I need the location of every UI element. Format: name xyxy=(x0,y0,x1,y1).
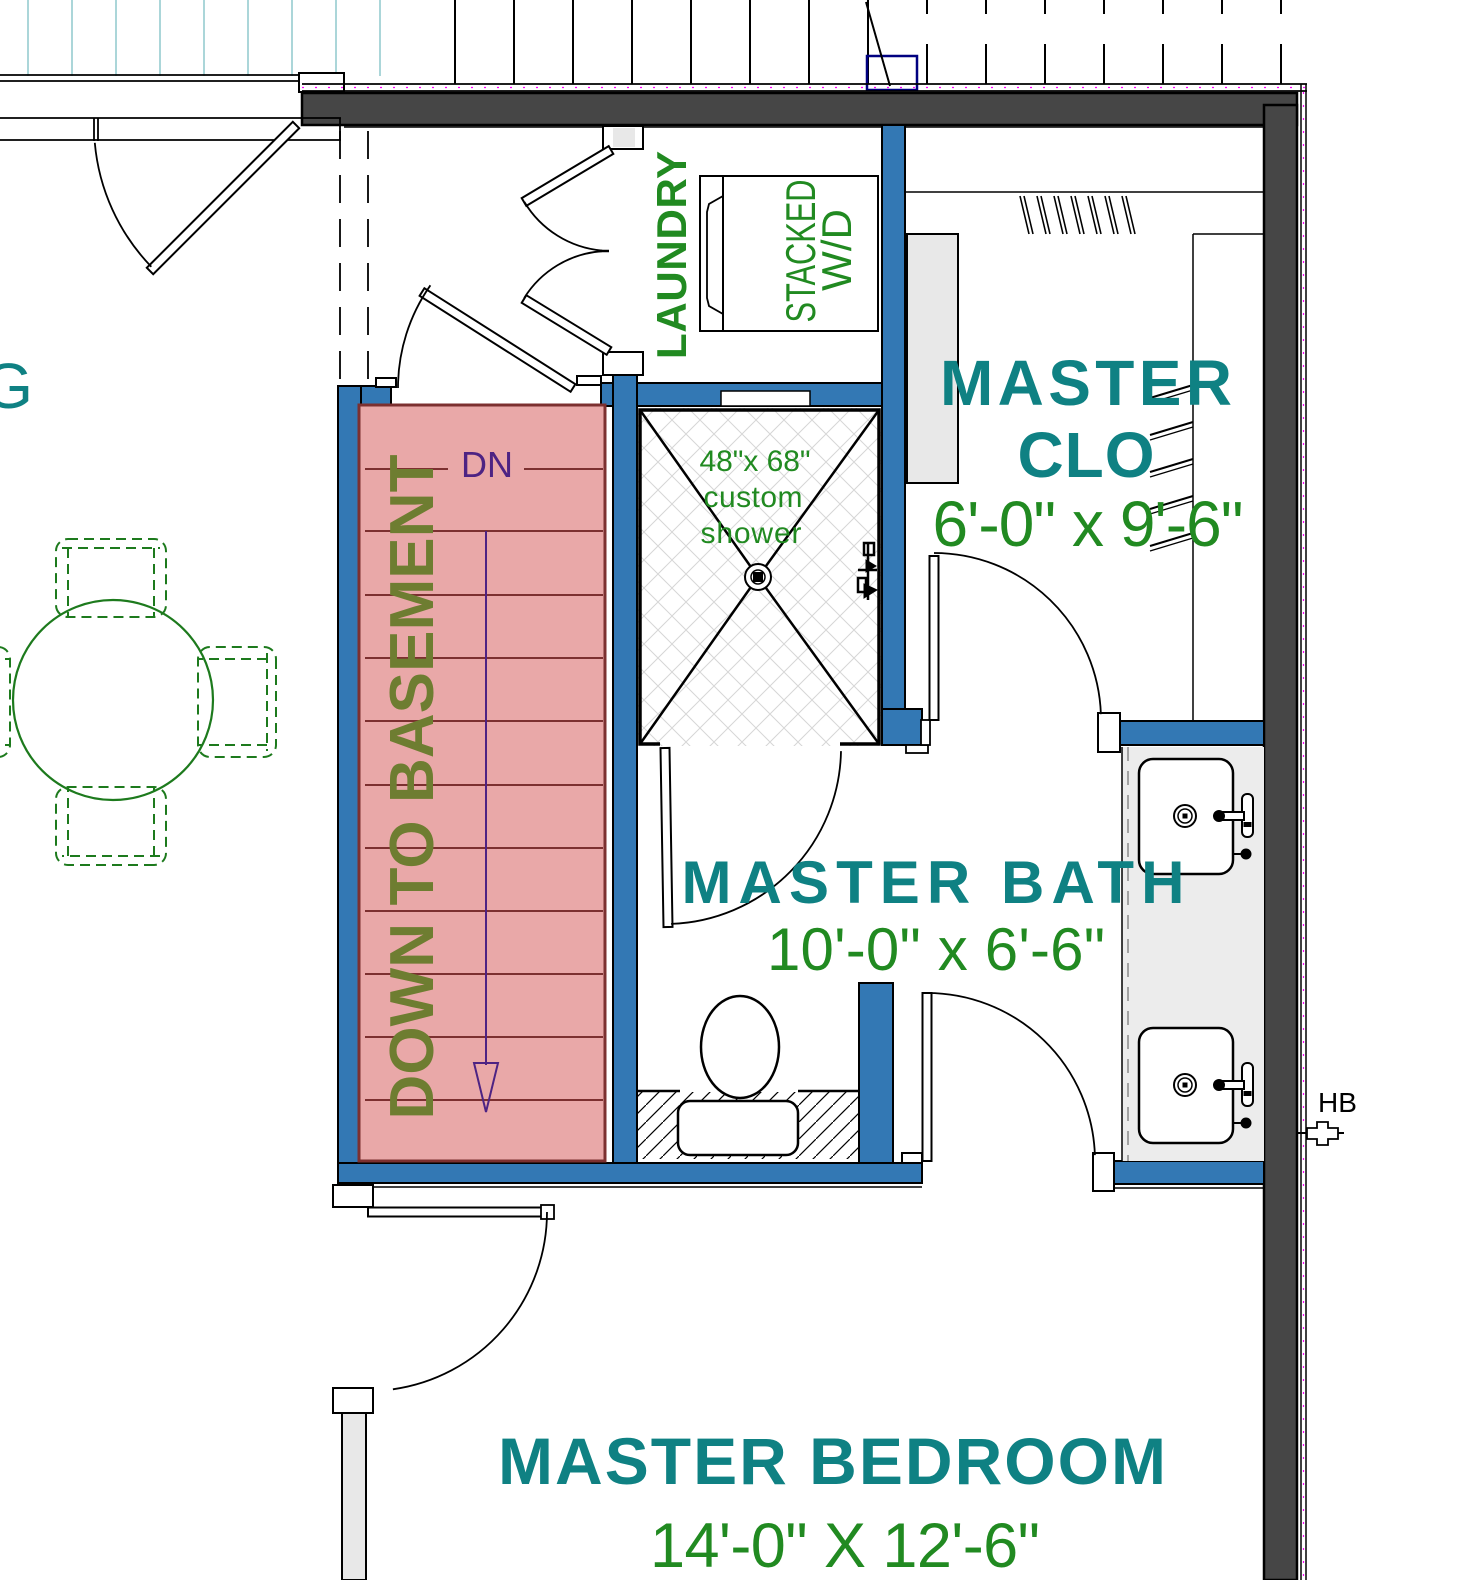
svg-text:LAUNDRY: LAUNDRY xyxy=(648,151,695,359)
svg-text:48"x 68": 48"x 68" xyxy=(700,445,811,478)
svg-text:shower: shower xyxy=(701,517,802,550)
svg-text:6'-0" x 9'-6": 6'-0" x 9'-6" xyxy=(933,488,1244,560)
svg-text:MASTER BATH: MASTER BATH xyxy=(682,849,1185,916)
svg-text:MASTER: MASTER xyxy=(940,347,1232,419)
svg-text:G: G xyxy=(0,350,33,422)
svg-text:MASTER BEDROOM: MASTER BEDROOM xyxy=(498,1424,1166,1498)
svg-text:W/D: W/D xyxy=(813,209,860,291)
svg-text:DN: DN xyxy=(461,444,513,485)
svg-text:DOWN TO BASEMENT: DOWN TO BASEMENT xyxy=(378,454,447,1119)
svg-text:10'-0" x 6'-6": 10'-0" x 6'-6" xyxy=(767,916,1105,983)
svg-text:custom: custom xyxy=(704,481,803,514)
svg-text:14'-0" X 12'-6": 14'-0" X 12'-6" xyxy=(650,1511,1040,1580)
svg-text:CLO: CLO xyxy=(1018,419,1155,491)
svg-text:HB: HB xyxy=(1318,1087,1357,1118)
